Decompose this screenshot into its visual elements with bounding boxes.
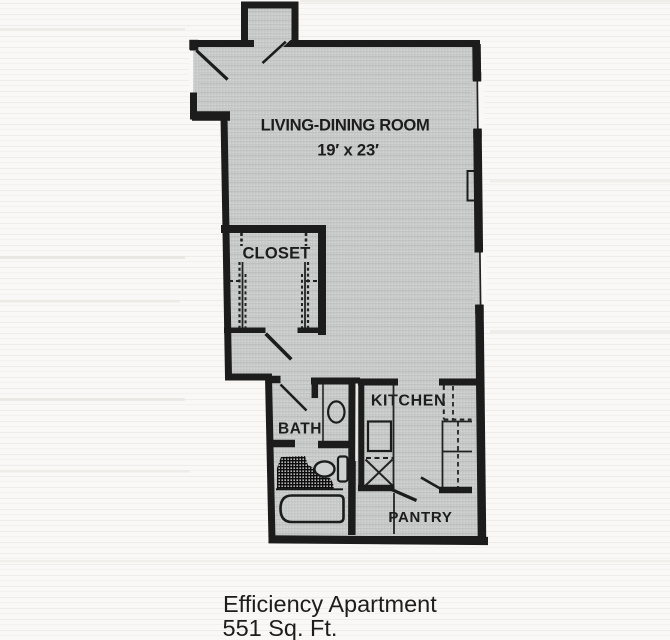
svg-text:LIVING-DINING ROOM: LIVING-DINING ROOM bbox=[261, 116, 430, 135]
svg-text:551 Sq. Ft.: 551 Sq. Ft. bbox=[223, 615, 338, 640]
svg-text:CLOSET: CLOSET bbox=[242, 245, 310, 263]
svg-text:KITCHEN: KITCHEN bbox=[371, 393, 446, 410]
svg-text:PANTRY: PANTRY bbox=[388, 509, 452, 526]
svg-text:Efficiency Apartment: Efficiency Apartment bbox=[223, 591, 437, 617]
svg-text:BATH: BATH bbox=[278, 421, 322, 438]
svg-text:19′ x 23′: 19′ x 23′ bbox=[317, 141, 379, 160]
